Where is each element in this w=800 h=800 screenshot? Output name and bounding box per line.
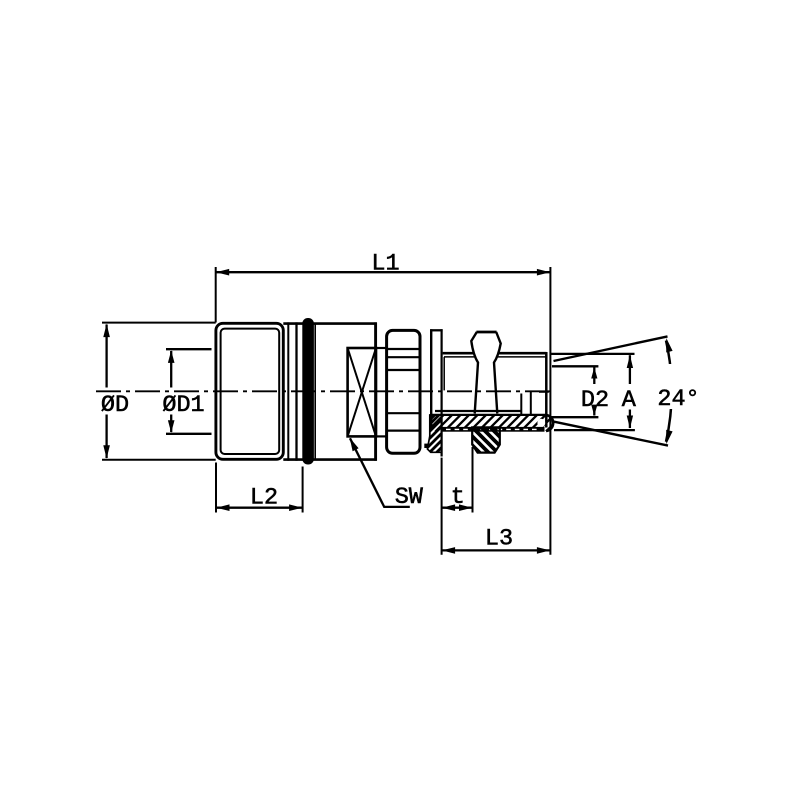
svg-text:D2: D2 [581, 387, 609, 414]
svg-text:L2: L2 [250, 485, 278, 512]
svg-text:ØD1: ØD1 [162, 392, 204, 419]
svg-text:ØD: ØD [101, 392, 129, 419]
svg-text:L3: L3 [485, 526, 513, 553]
svg-text:A: A [622, 387, 637, 414]
svg-text:24°: 24° [657, 386, 699, 413]
svg-text:L1: L1 [371, 251, 399, 278]
svg-text:t: t [451, 484, 465, 511]
svg-text:SW: SW [395, 484, 424, 511]
